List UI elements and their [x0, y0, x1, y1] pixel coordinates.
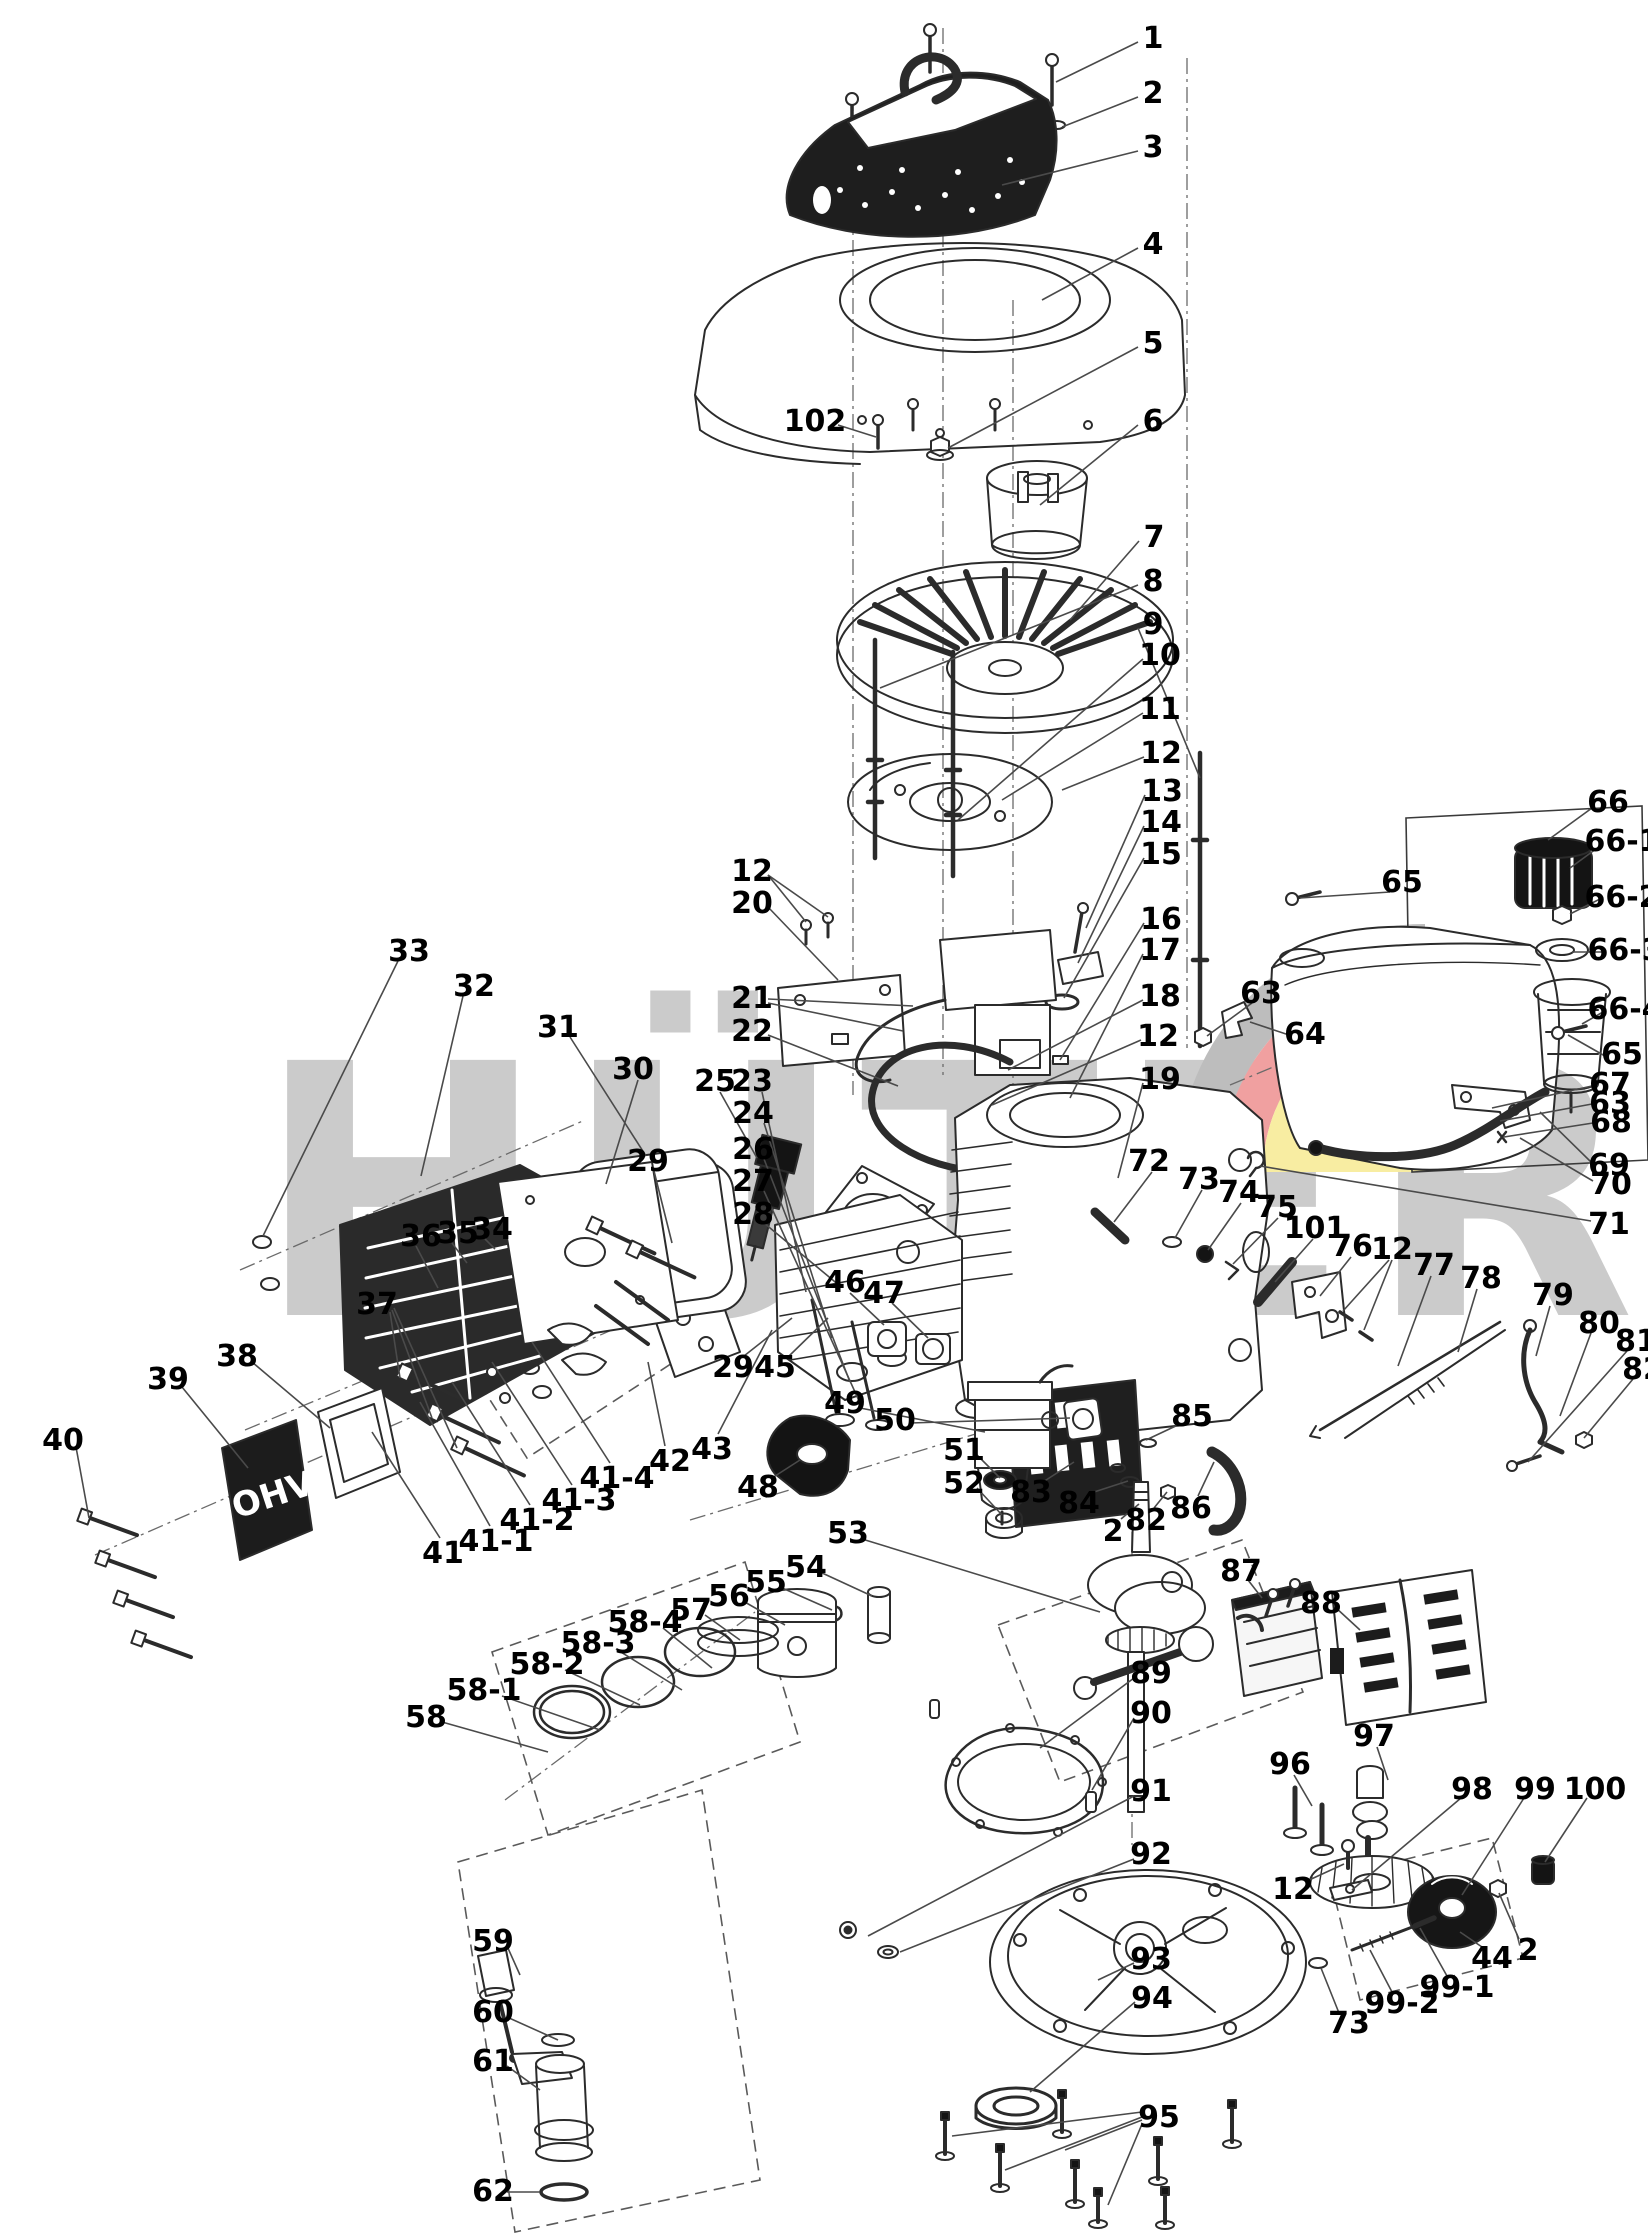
- part-label-95: 95: [1138, 2100, 1180, 2135]
- part-label-30: 30: [612, 1052, 654, 1087]
- leader-line: [1499, 1893, 1519, 1939]
- part-label-93: 93: [1130, 1942, 1172, 1977]
- leader-line: [1078, 826, 1144, 963]
- part-label-40: 40: [42, 1423, 84, 1458]
- part-label-12: 12: [731, 854, 773, 889]
- cover-bolt-washer: [840, 1922, 898, 1958]
- part-label-54: 54: [785, 1550, 827, 1585]
- part-label-11: 11: [1139, 692, 1181, 727]
- leader-line: [507, 2017, 558, 2040]
- part-label-72: 72: [1128, 1144, 1170, 1179]
- valve-cover-gasket: [318, 1388, 400, 1498]
- part-label-18: 18: [1139, 979, 1181, 1014]
- part-label-14: 14: [1140, 805, 1182, 840]
- part-label-23: 23: [731, 1064, 773, 1099]
- part-label-17: 17: [1139, 933, 1181, 968]
- crank-oil-seal: [976, 2088, 1056, 2129]
- part-label-16: 16: [1140, 902, 1182, 937]
- part-label-15: 15: [1140, 837, 1182, 872]
- cap-nut: [1553, 906, 1571, 924]
- part-label-78: 78: [1460, 1261, 1502, 1296]
- part-label-73: 73: [1328, 2006, 1370, 2041]
- part-label-26: 26: [732, 1132, 774, 1167]
- part-label-53: 53: [827, 1516, 869, 1551]
- part-label-82: 82: [1125, 1503, 1167, 1538]
- part-label-87: 87: [1220, 1554, 1262, 1589]
- part-label-92: 92: [1130, 1837, 1172, 1872]
- part-label-38: 38: [216, 1339, 258, 1374]
- part-label-83: 83: [1010, 1475, 1052, 1510]
- part-label-6: 6: [1143, 404, 1164, 439]
- blower-housing: [695, 243, 1185, 464]
- part-label-43: 43: [691, 1432, 733, 1467]
- part-label-82: 82: [1622, 1352, 1648, 1387]
- leader-line: [1545, 1798, 1587, 1862]
- part-label-10: 10: [1139, 638, 1181, 673]
- part-label-86: 86: [1170, 1491, 1212, 1526]
- governor-shaft: [1309, 1918, 1434, 1968]
- part-label-51: 51: [943, 1433, 985, 1468]
- leader-line: [182, 1387, 248, 1468]
- part-label-50: 50: [874, 1403, 916, 1438]
- carb-gasket: [916, 1334, 950, 1364]
- part-label-4: 4: [1143, 227, 1164, 262]
- part-label-21: 21: [731, 981, 773, 1016]
- part-label-55: 55: [745, 1565, 787, 1600]
- part-label-66-4: 66-4: [1587, 992, 1648, 1027]
- part-label-39: 39: [147, 1362, 189, 1397]
- part-label-47: 47: [863, 1276, 905, 1311]
- part-label-84: 84: [1058, 1486, 1100, 1521]
- parts-diagram-page: HÜTER: [0, 0, 1648, 2233]
- part-label-3: 3: [1143, 130, 1164, 165]
- dowel-pin: [1086, 1792, 1096, 1812]
- part-label-73: 73: [1178, 1162, 1220, 1197]
- part-label-35: 35: [437, 1216, 479, 1251]
- part-label-12: 12: [1140, 736, 1182, 771]
- leader-line: [1062, 757, 1144, 790]
- oil-fill-tube: [512, 2034, 593, 2200]
- part-label-58-4: 58-4: [607, 1605, 682, 1640]
- leader-line: [1065, 2120, 1142, 2150]
- governor-gear: [1408, 1876, 1496, 1948]
- part-label-9: 9: [1143, 607, 1164, 642]
- part-label-29: 29: [627, 1144, 669, 1179]
- part-label-2: 2: [1518, 1933, 1539, 1968]
- part-label-32: 32: [453, 969, 495, 1004]
- flywheel: [837, 562, 1173, 733]
- part-label-70: 70: [1590, 1167, 1632, 1202]
- tank-nut: [1195, 1028, 1211, 1046]
- part-label-91: 91: [1130, 1774, 1172, 1809]
- part-label-80: 80: [1578, 1306, 1620, 1341]
- leader-line: [862, 1539, 1100, 1612]
- part-label-22: 22: [731, 1014, 773, 1049]
- part-label-97: 97: [1353, 1719, 1395, 1754]
- part-label-41-4: 41-4: [579, 1461, 654, 1496]
- flywheel-nut: [927, 437, 953, 460]
- part-label-24: 24: [732, 1096, 774, 1131]
- piston-pin: [830, 1587, 890, 1643]
- engine-exploded-diagram: HÜTER: [0, 0, 1648, 2233]
- part-label-79: 79: [1532, 1278, 1574, 1313]
- part-label-8: 8: [1143, 564, 1164, 599]
- air-filter-cover: [1330, 1570, 1486, 1725]
- part-label-88: 88: [1300, 1586, 1342, 1621]
- part-label-25: 25: [694, 1064, 736, 1099]
- part-label-27: 27: [732, 1164, 774, 1199]
- part-label-45: 45: [754, 1350, 796, 1385]
- part-label-12: 12: [1137, 1019, 1179, 1054]
- part-label-46: 46: [824, 1265, 866, 1300]
- part-label-37: 37: [356, 1287, 398, 1322]
- intake-elbow: [767, 1416, 850, 1496]
- part-label-13: 13: [1141, 774, 1183, 809]
- fuel-cap: [1515, 838, 1592, 908]
- part-label-20: 20: [731, 886, 773, 921]
- cap-washer: [1536, 939, 1588, 961]
- part-label-100: 100: [1564, 1772, 1627, 1807]
- part-label-5: 5: [1143, 326, 1164, 361]
- cylinder-block: [950, 1078, 1269, 1432]
- part-label-99-2: 99-2: [1364, 1986, 1439, 2021]
- part-label-68: 68: [1590, 1105, 1632, 1140]
- starter-cup: [987, 461, 1087, 559]
- leader-line: [948, 347, 1138, 448]
- part-label-66-1: 66-1: [1584, 824, 1648, 859]
- leader-line: [1056, 42, 1138, 82]
- part-label-42: 42: [649, 1444, 691, 1479]
- part-label-60: 60: [472, 1995, 514, 2030]
- part-label-49: 49: [824, 1386, 866, 1421]
- part-label-76: 76: [1331, 1229, 1373, 1264]
- part-label-85: 85: [1171, 1399, 1213, 1434]
- part-label-99: 99: [1514, 1772, 1556, 1807]
- part-label-102: 102: [784, 404, 847, 439]
- part-label-19: 19: [1139, 1062, 1181, 1097]
- part-label-36: 36: [400, 1219, 442, 1254]
- part-label-89: 89: [1130, 1656, 1172, 1691]
- part-label-33: 33: [388, 934, 430, 969]
- leader-line: [1062, 97, 1138, 127]
- governor-nut: [1490, 1880, 1506, 1897]
- part-label-71: 71: [1588, 1207, 1630, 1242]
- part-label-98: 98: [1451, 1772, 1493, 1807]
- part-label-2: 2: [1103, 1514, 1124, 1549]
- part-label-52: 52: [943, 1466, 985, 1501]
- leader-line: [820, 1572, 872, 1596]
- leader-line: [442, 1722, 548, 1752]
- governor-sleeve: [1532, 1856, 1554, 1884]
- part-label-94: 94: [1131, 1981, 1173, 2016]
- part-label-56: 56: [708, 1579, 750, 1614]
- part-label-58: 58: [405, 1700, 447, 1735]
- air-cleaner-top-cover: [787, 57, 1057, 237]
- part-label-28: 28: [732, 1197, 774, 1232]
- leader-line: [1108, 2124, 1142, 2205]
- part-label-62: 62: [472, 2174, 514, 2209]
- cover-bolts: [936, 2090, 1241, 2229]
- cover-flange-bolts: [77, 1509, 193, 1664]
- valve-cover: OHV: [222, 1420, 320, 1560]
- carb-insulator: [868, 1322, 906, 1356]
- part-label-96: 96: [1269, 1747, 1311, 1782]
- leader-line: [1040, 425, 1138, 505]
- part-label-61: 61: [472, 2044, 514, 2079]
- sump-gasket: [930, 1700, 1106, 1836]
- part-label-63: 63: [1240, 976, 1282, 1011]
- part-label-1: 1: [1143, 21, 1164, 56]
- part-label-65: 65: [1381, 865, 1423, 900]
- part-label-66-2: 66-2: [1584, 880, 1648, 915]
- part-label-31: 31: [537, 1010, 579, 1045]
- leader-line: [768, 875, 828, 917]
- intake-gasket: [1064, 1398, 1103, 1440]
- part-label-2: 2: [1143, 76, 1164, 111]
- part-label-48: 48: [737, 1470, 779, 1505]
- part-label-66: 66: [1587, 785, 1629, 820]
- leader-line: [372, 1432, 440, 1538]
- part-label-77: 77: [1413, 1248, 1455, 1283]
- part-label-7: 7: [1144, 520, 1165, 555]
- part-label-74: 74: [1218, 1175, 1260, 1210]
- leader-line: [1462, 1798, 1524, 1895]
- valve-tappets: [1284, 1788, 1333, 1855]
- part-label-59: 59: [472, 1924, 514, 1959]
- part-label-66-3: 66-3: [1587, 933, 1648, 968]
- part-label-12: 12: [1371, 1232, 1413, 1267]
- breather-elbow: [1212, 1452, 1241, 1530]
- part-label-64: 64: [1284, 1017, 1326, 1052]
- part-label-29: 29: [712, 1350, 754, 1385]
- part-label-12: 12: [1272, 1872, 1314, 1907]
- part-label-90: 90: [1130, 1696, 1172, 1731]
